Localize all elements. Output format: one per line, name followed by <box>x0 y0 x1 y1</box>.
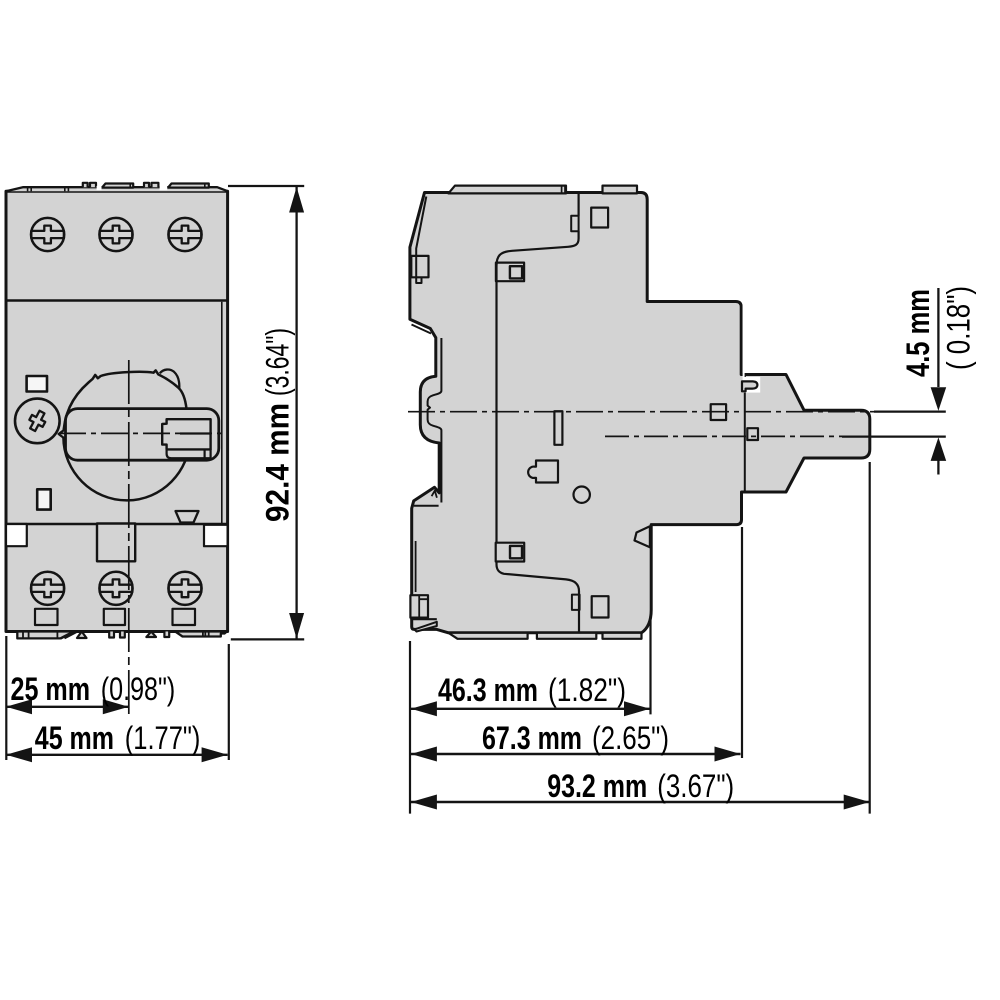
svg-text:67.3 mm: 67.3 mm <box>482 720 582 756</box>
svg-text:25 mm: 25 mm <box>11 671 91 707</box>
svg-text:46.3 mm: 46.3 mm <box>438 672 538 708</box>
svg-text:(1.77"): (1.77") <box>125 720 201 756</box>
svg-text:(3.64"): (3.64") <box>260 328 296 396</box>
svg-text:(1.82"): (1.82") <box>548 672 626 708</box>
svg-text:93.2 mm: 93.2 mm <box>547 768 647 804</box>
svg-text:4.5 mm: 4.5 mm <box>900 289 936 377</box>
svg-text:(2.65"): (2.65") <box>592 720 669 756</box>
svg-text:( 0.18"): ( 0.18") <box>941 286 977 370</box>
svg-text:(0.98"): (0.98") <box>101 671 176 707</box>
svg-text:(3.67"): (3.67") <box>657 768 734 804</box>
svg-text:45 mm: 45 mm <box>35 720 114 756</box>
svg-text:92.4 mm: 92.4 mm <box>260 403 296 522</box>
